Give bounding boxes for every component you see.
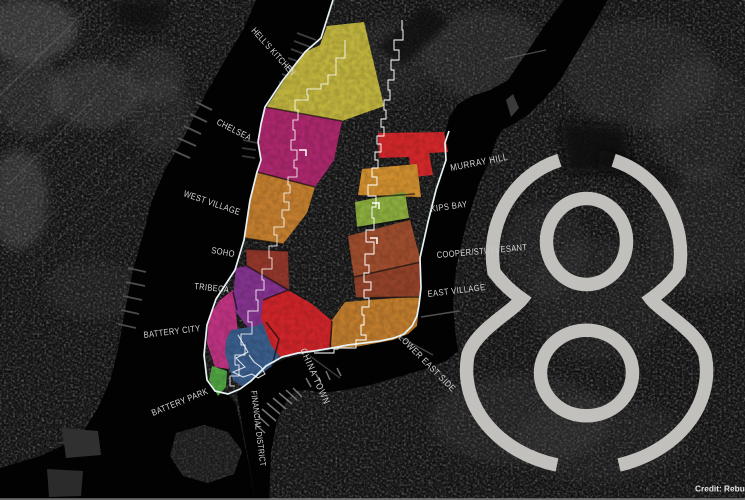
svg-text:Credit: Rebu: Credit: Rebu [695, 484, 745, 494]
